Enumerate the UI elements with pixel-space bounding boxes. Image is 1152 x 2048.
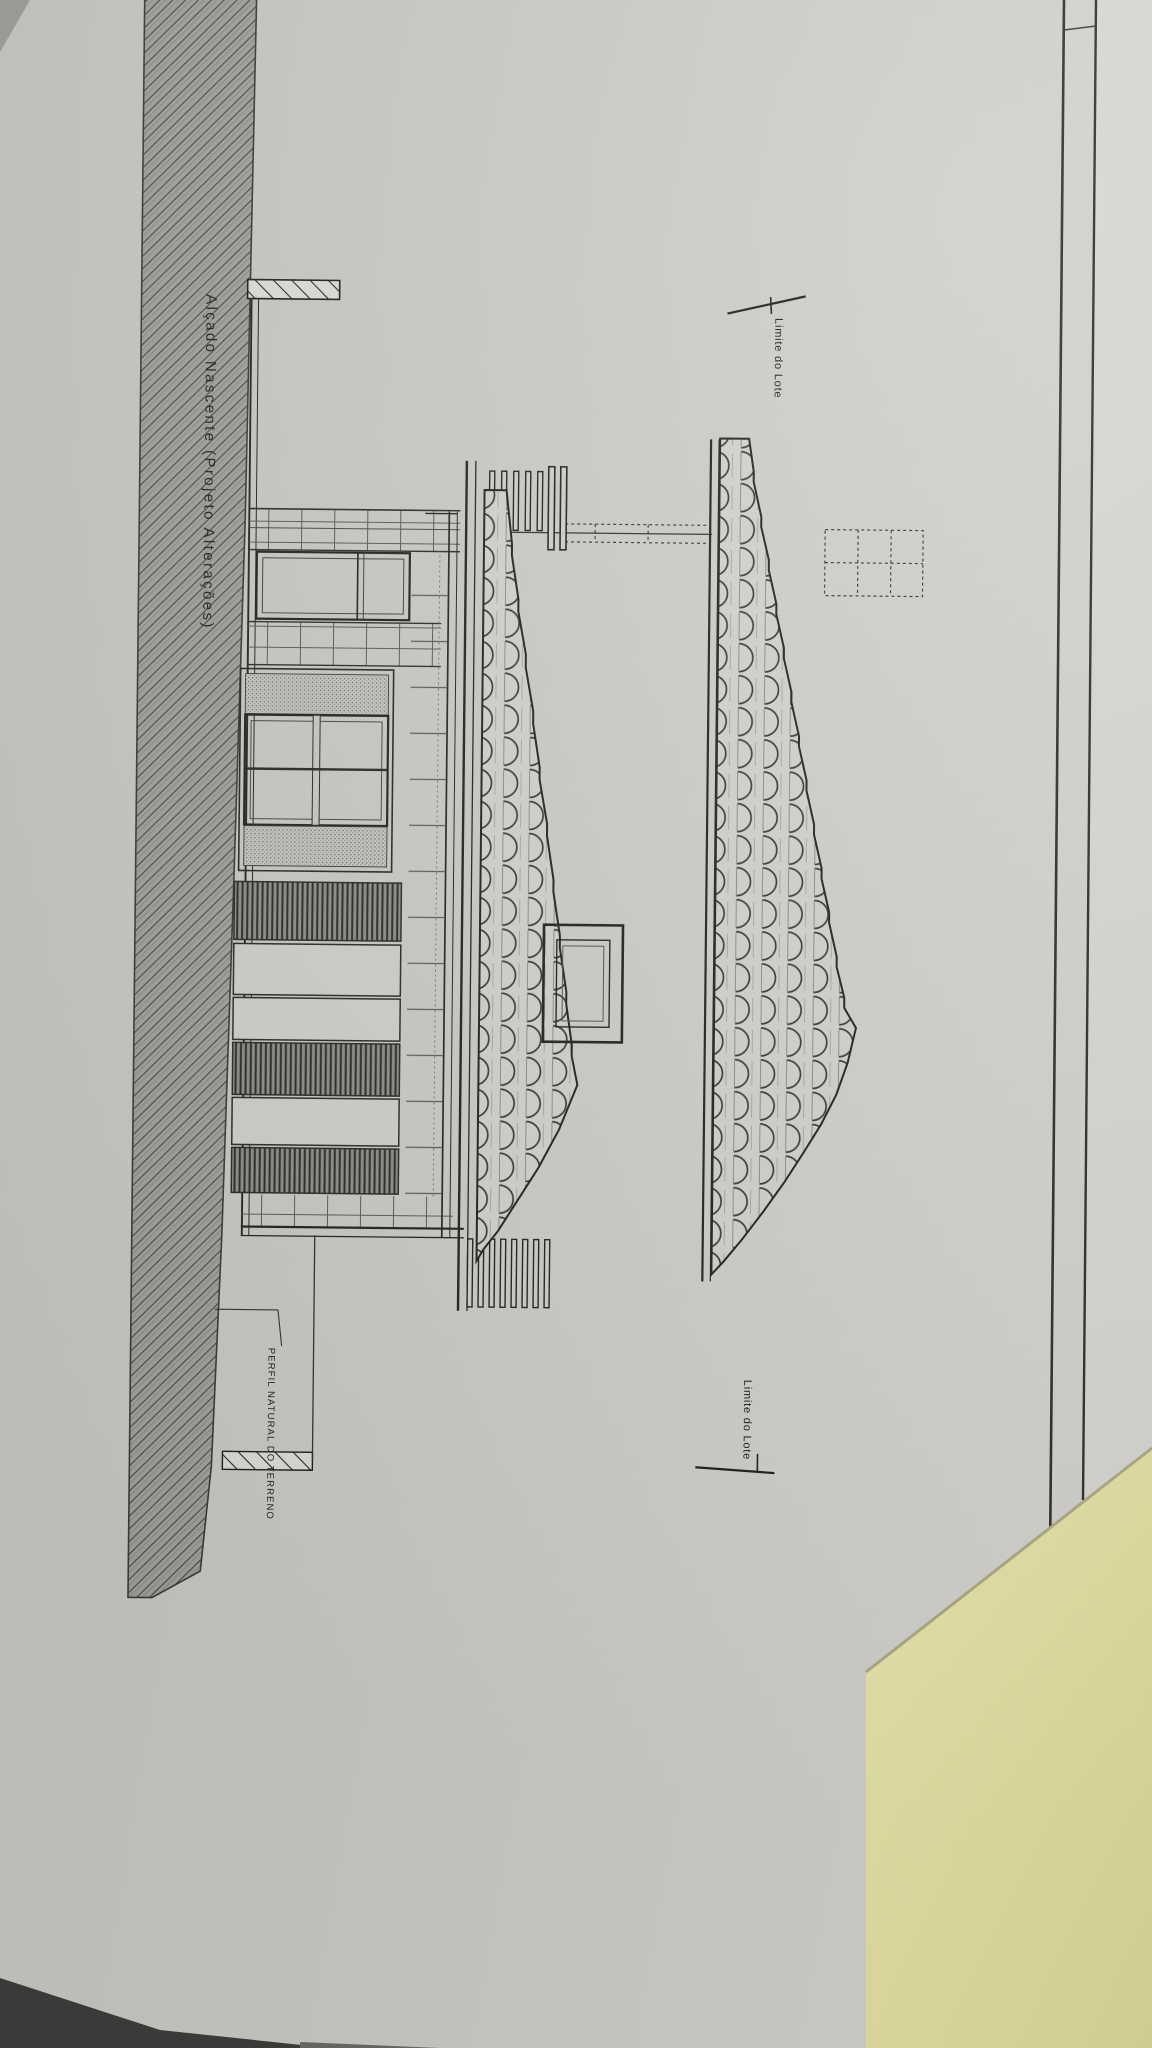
shutter-dark [234, 881, 402, 941]
base-line-inner [241, 1236, 464, 1238]
house-facade [231, 508, 472, 1237]
corner-quoins [405, 551, 448, 1196]
terrain-profile-reference [213, 1234, 314, 1459]
terrain-section-band [128, 0, 257, 1599]
stone-coursing-bottom [242, 1195, 453, 1229]
sheet-edge [1050, 0, 1152, 1560]
eave-fascia [458, 461, 467, 1311]
window-transom [245, 769, 388, 770]
shutter-light [233, 943, 401, 996]
screen-panel-bottom [244, 826, 387, 867]
screen-panel-top [245, 674, 388, 715]
sticky-note [866, 1448, 1152, 2048]
roof-near-slope [458, 461, 713, 1314]
upper-window [256, 552, 410, 621]
lot-limit-line-top [727, 296, 805, 315]
shutter-light [232, 1097, 399, 1146]
shutter-light [233, 997, 400, 1041]
roof-far-slope [702, 438, 862, 1283]
drawing-title: Alçado Nascente (Projeto Alterações) [199, 294, 220, 630]
roof-tiles-near [477, 490, 584, 1262]
lot-limit-label-bottom: Limite do Lote [740, 1380, 753, 1460]
roller-shutters [231, 881, 401, 1194]
far-eave-fascia [702, 439, 711, 1281]
fence-grid-right [824, 530, 923, 597]
terrain-profile-label: PERFIL NATURAL DO TERRENO [264, 1348, 277, 1520]
lot-limit-line-bottom [695, 1467, 774, 1473]
rear-eave-line [485, 532, 712, 534]
shutter-dark [231, 1147, 398, 1194]
table-corner-bottom-left [0, 1978, 330, 2048]
drawing-sheet: Alçado Nascente (Projeto Alterações) Lim… [0, 0, 1152, 2048]
vent-posts [548, 467, 567, 550]
right-wall-line-inner [450, 512, 458, 1238]
photo-corner-shade [0, 0, 30, 52]
shutter-dark [232, 1042, 400, 1096]
retaining-wall-stub-top [248, 280, 340, 300]
lot-limit-tick-top [770, 297, 771, 314]
lot-limit-label-top: Limite do Lote [772, 318, 785, 398]
photo-of-architectural-drawing: Alçado Nascente (Projeto Alterações) Lim… [0, 0, 1152, 2048]
elevation-drawing: Alçado Nascente (Projeto Alterações) Lim… [128, 0, 929, 1606]
stone-coursing-top [249, 509, 460, 552]
table-edge-strip [300, 2042, 440, 2048]
screened-window [239, 668, 394, 872]
eave-fascia-inner [467, 461, 476, 1311]
roof-tiles-far [711, 438, 862, 1275]
